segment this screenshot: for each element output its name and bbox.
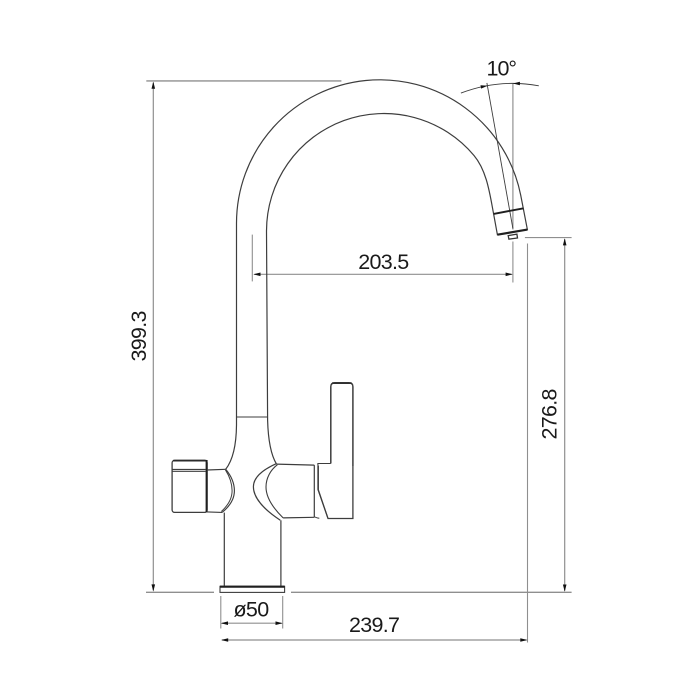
svg-text:239.7: 239.7 [349,613,399,637]
svg-text:276.8: 276.8 [538,388,562,439]
svg-text:ø50: ø50 [234,598,270,622]
svg-text:203.5: 203.5 [358,250,409,274]
svg-text:399.3: 399.3 [127,310,151,361]
svg-text:10°: 10° [487,57,517,81]
